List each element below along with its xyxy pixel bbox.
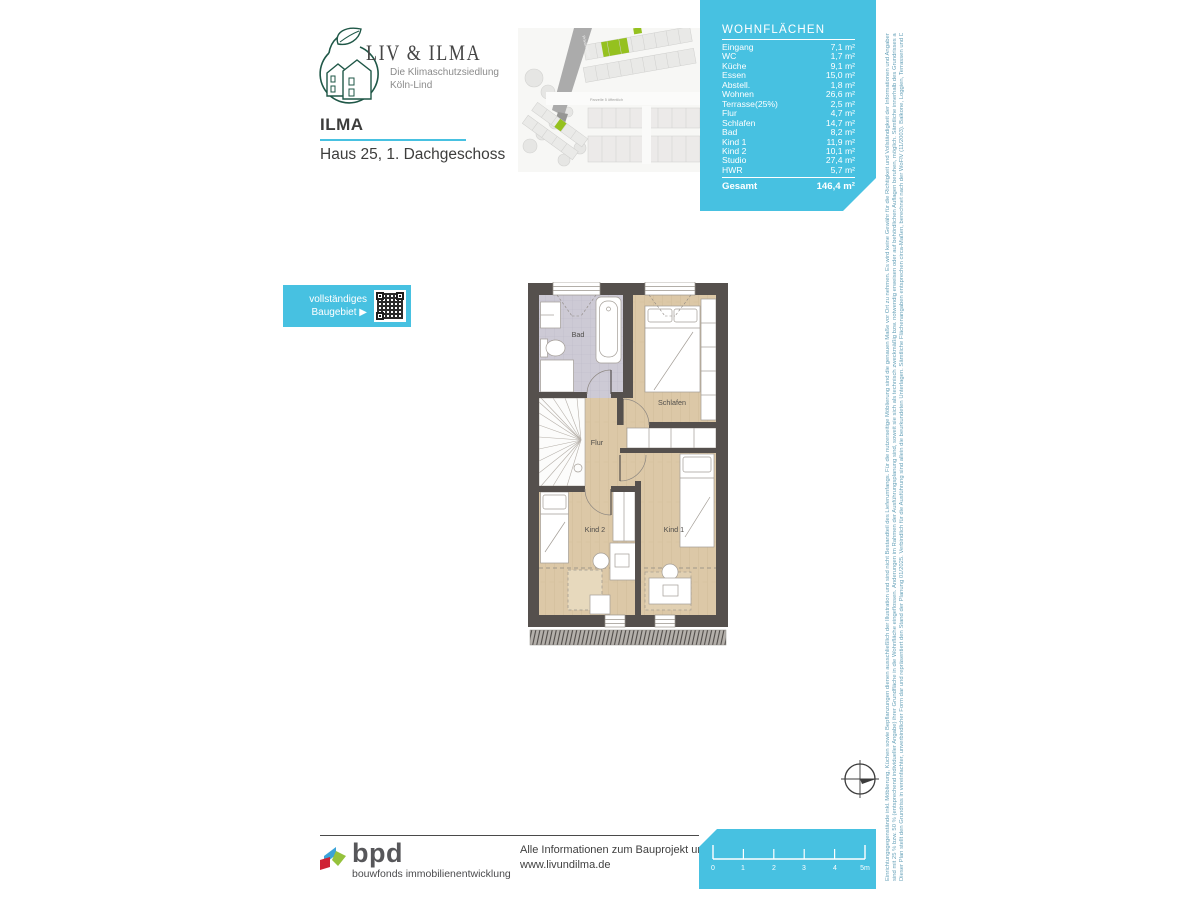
room-label-kind2: Kind 2 (585, 525, 605, 534)
brand-subtitle: Die Klimaschutzsiedlung Köln-Lind (390, 66, 499, 92)
title-underline (320, 139, 466, 141)
brand-subtitle-line2: Köln-Lind (390, 79, 499, 92)
scale-tick-2: 2 (767, 865, 781, 872)
room-label-flur: Flur (591, 438, 604, 447)
room-label-kind1: Kind 1 (664, 525, 684, 534)
baugebiet-button-label: vollständiges Baugebiet ▶ (283, 293, 374, 319)
floorplan-sheet: LIV & ILMA Die Klimaschutzsiedlung Köln-… (0, 0, 1200, 900)
areas-title: WOHNFLÄCHEN (722, 24, 855, 40)
scale-tick-1: 1 (736, 865, 750, 872)
room-label-bad: Bad (572, 330, 585, 339)
project-website-link[interactable]: www.livundilma.de (520, 858, 719, 873)
parcel-label: Parzelle 5 öffentlich (590, 98, 623, 102)
area-row: HWR5,7 m² (722, 166, 855, 175)
liv-ilma-logo-icon (316, 26, 386, 110)
disclaimer-line-1: Dieser Plan stellt den Grundriss in vere… (899, 33, 906, 881)
site-plan-map: Privatstraße Parzelle 5 öffentlich (518, 28, 700, 172)
baugebiet-label-line1: vollständiges (283, 293, 367, 306)
living-areas-panel: WOHNFLÄCHEN Eingang7,1 m² WC1,7 m² Küche… (700, 0, 876, 211)
baugebiet-label-line2: Baugebiet ▶ (283, 306, 367, 319)
bpd-logo-subtitle: bouwfonds immobilienentwicklung (352, 868, 511, 880)
project-info: Alle Informationen zum Bauprojekt unter:… (520, 843, 719, 873)
house-subtitle: Haus 25, 1. Dachgeschoss (320, 146, 505, 164)
baugebiet-button[interactable]: vollständiges Baugebiet ▶ (283, 285, 411, 327)
area-label: HWR (722, 166, 743, 175)
brand-subtitle-line1: Die Klimaschutzsiedlung (390, 66, 499, 79)
floor-plan-drawing: Bad Schlafen Flur Kind 2 Kind 1 (527, 282, 731, 647)
disclaimer-line-3: Einrichtungsgegenstände inkl. Möblierung… (885, 33, 892, 881)
page-title: ILMA (320, 115, 364, 135)
bpd-logo-text: bpd (352, 838, 403, 869)
brand-title: LIV & ILMA (366, 40, 481, 66)
area-total-value: 146,4 m² (817, 181, 855, 192)
scale-bar (699, 829, 876, 889)
project-info-line1: Alle Informationen zum Bauprojekt unter: (520, 843, 719, 858)
disclaimer-line-2: sind mit 25 % bzw. 50 % (entsprechend in… (892, 33, 899, 881)
scale-tick-5: 5m (858, 865, 872, 872)
area-value: 5,7 m² (831, 166, 855, 175)
roof-hatch-strip (530, 630, 726, 645)
room-label-schlafen: Schlafen (658, 398, 686, 407)
area-total-label: Gesamt (722, 181, 757, 192)
scale-tick-4: 4 (828, 865, 842, 872)
scale-bar-panel: 0 1 2 3 4 5m (699, 829, 876, 889)
footer-divider (320, 835, 699, 836)
north-arrow-icon (838, 757, 882, 801)
bpd-logo-icon (318, 842, 348, 874)
qr-code (374, 290, 406, 322)
area-total-row: Gesamt146,4 m² (722, 177, 855, 192)
scale-tick-3: 3 (797, 865, 811, 872)
scale-tick-0: 0 (706, 865, 720, 872)
